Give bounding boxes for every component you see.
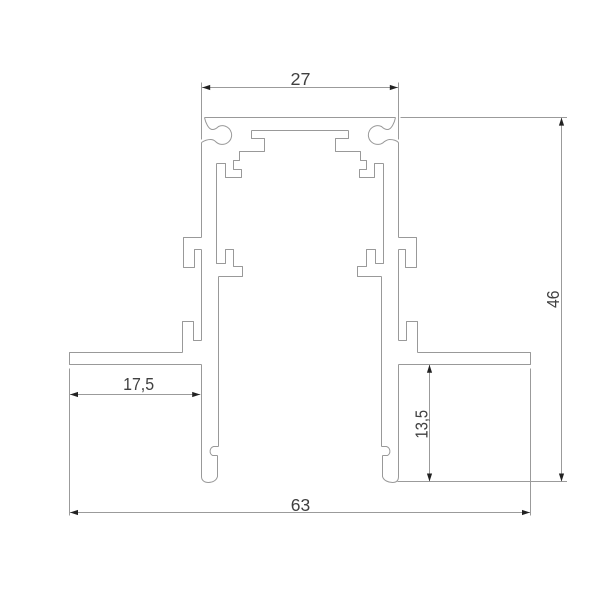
svg-text:17,5: 17,5 <box>123 374 154 394</box>
svg-text:63: 63 <box>291 495 310 515</box>
svg-text:27: 27 <box>291 69 311 89</box>
svg-text:13,5: 13,5 <box>412 410 432 439</box>
svg-text:46: 46 <box>543 291 563 309</box>
